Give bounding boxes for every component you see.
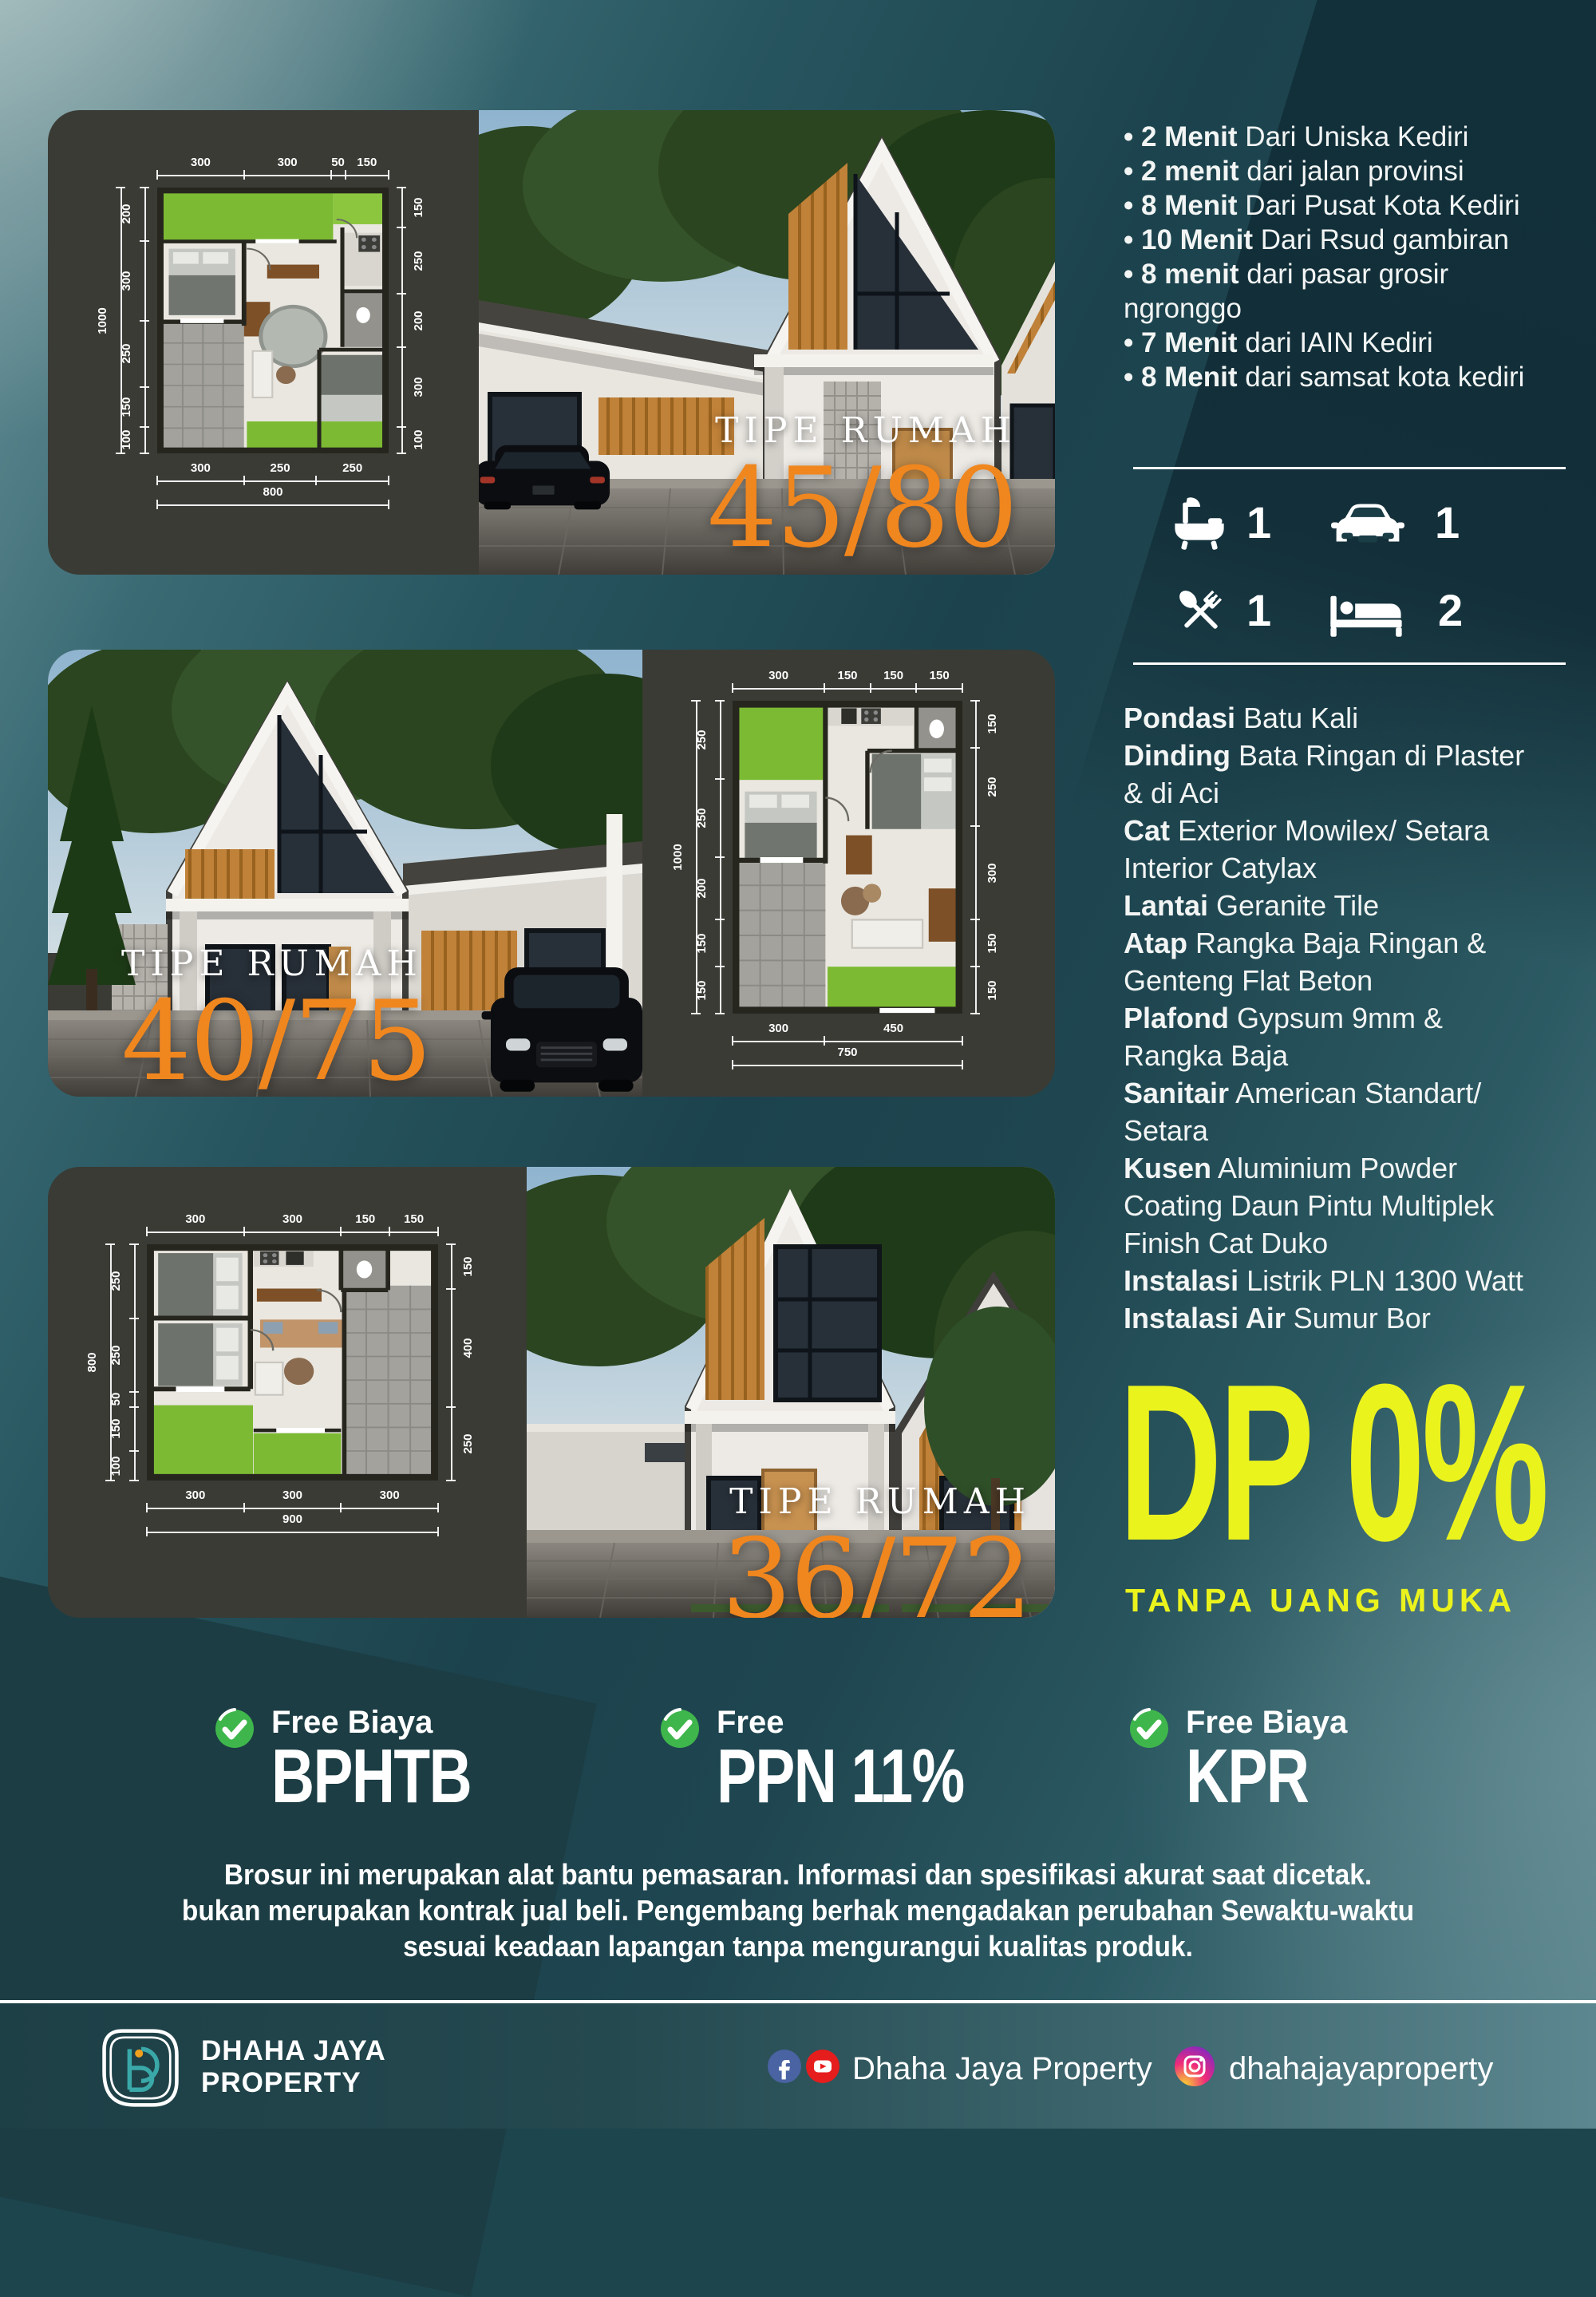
dimension-label: 300 [365,1489,413,1503]
dimension-line [129,1480,139,1481]
car-illustration [482,967,642,1092]
facebook-icon[interactable] [768,2050,801,2087]
disclaimer-line: sesuai keadaan lapangan tanpa mengurangu… [56,1928,1540,1964]
card-type-overlay: TIPE RUMAH 36/72 [721,1485,1031,1618]
dimension-label: 300 [176,461,224,476]
facebook-youtube-handle[interactable]: Dhaha Jaya Property [852,2051,1152,2087]
dimension-label: 200 [412,297,426,345]
brand-line2: PROPERTY [201,2067,386,2099]
floor-plan-40-75: 3001501501503004507502502502001501501000… [677,682,1036,1077]
bedroom-count: 2 [1438,584,1463,636]
divider-line [1133,662,1566,665]
card-type-overlay: TIPE RUMAH 40/75 [121,947,431,1097]
dimension-label: 800 [85,1338,100,1386]
brand-logo-icon [101,2027,180,2113]
dimension-label: 150 [986,967,1000,1014]
disclaimer: Brosur ini merupakan alat bantu pemasara… [0,1856,1596,1964]
floor-plan-36-72: 3003001501503003003009002502505015010080… [67,1199,482,1542]
utensils-icon [1171,581,1229,646]
dimension-line [120,188,122,453]
dimension-line [243,476,245,485]
dimension-line [140,386,149,388]
dimension-line [315,476,317,485]
dimension-line [962,1036,963,1046]
spec-item: Plafond Gypsum 9mm & Rangka Baja [1124,999,1527,1074]
dimension-label: 150 [412,184,426,231]
dimension-label: 300 [412,363,426,411]
floor-plan-drawing [733,701,962,1014]
dimension-line [140,453,149,454]
dimension-label: 1000 [671,833,685,881]
location-list: 2 Menit Dari Uniska Kediri2 menit dari j… [1124,120,1527,394]
dimension-line [389,1227,390,1236]
dimension-line [715,856,725,858]
spec-item: Instalasi Air Sumur Bor [1124,1299,1527,1337]
check-icon [659,1708,701,1753]
instagram-handle[interactable]: dhahajayaproperty [1229,2051,1493,2087]
dimension-line [157,504,389,506]
dimension-line [129,1391,139,1393]
dimension-line [733,1041,962,1042]
dimension-label: 400 [461,1324,476,1372]
benefit-value: BPHTB [271,1742,471,1812]
location-item: 8 menit dari pasar grosir ngronggo [1124,257,1527,326]
house-render-36-72: TIPE RUMAH 36/72 [527,1167,1055,1618]
dimension-label: 800 [249,485,297,500]
dimension-line [129,1318,139,1319]
dimension-line [397,453,406,454]
dimension-line [733,688,962,690]
location-item: 8 Menit Dari Pusat Kota Kediri [1124,188,1527,223]
spec-item: Dinding Bata Ringan di Plaster & di Aci [1124,737,1527,812]
dimension-label: 150 [986,919,1000,967]
house-card-45-80: TIPE RUMAH 45/80 [48,110,1055,575]
dimension-line [129,1450,139,1452]
dimension-line [129,1406,139,1408]
dimension-label: 300 [755,1022,803,1036]
dimension-line [715,778,725,780]
location-item: 2 menit dari jalan provinsi [1124,154,1527,188]
dimension-line [140,426,149,428]
dimension-line [696,701,697,1014]
dimension-line [330,170,332,180]
footer-divider [0,2000,1596,2003]
dimension-line [146,1527,148,1536]
spec-item: Kusen Aluminium Powder Coating Daun Pint… [1124,1149,1527,1262]
house-size-value: 45/80 [707,453,1017,563]
spec-item: Sanitair American Standart/ Setara [1124,1074,1527,1149]
dimension-label: 450 [870,1022,918,1036]
check-icon [1128,1708,1170,1753]
dimension-label: 900 [269,1512,317,1527]
dimension-line [437,1227,439,1236]
dimension-label: 300 [269,1212,317,1227]
dimension-label: 250 [329,461,377,476]
dimension-label: 250 [412,237,426,285]
dimension-label: 150 [824,669,871,683]
dimension-line [157,175,389,176]
bathroom-count: 1 [1246,496,1271,548]
dimension-line [824,1036,825,1046]
dimension-label: 150 [870,669,918,683]
spec-item: Atap Rangka Baja Ringan & Genteng Flat B… [1124,924,1527,999]
dp-subtitle: TANPA UANG MUKA [1125,1582,1516,1619]
benefit-bphtb: Free Biaya BPHTB [214,1703,527,1812]
dimension-line [388,476,389,485]
dimension-line [732,1060,733,1069]
dimension-label: 300 [755,669,803,683]
dimension-label: 150 [915,669,963,683]
dimension-line [397,227,406,228]
floor-plan-45-80: 3003005015030025025080020030025015010010… [112,168,423,527]
disclaimer-line: Brosur ini merupakan alat bantu pemasara… [56,1856,1540,1892]
dimension-label: 150 [342,1212,389,1227]
benefit-value: PPN 11% [717,1742,964,1812]
dimension-line [105,1480,115,1481]
dimension-line [116,453,125,454]
dimension-line [691,1013,701,1014]
location-item: 2 Menit Dari Uniska Kediri [1124,120,1527,154]
dimension-line [715,700,725,702]
dimension-line [340,1503,342,1512]
dimension-line [397,426,406,428]
check-icon [214,1708,255,1753]
dimension-line [962,683,963,693]
dimension-line [345,170,346,180]
carport-count: 1 [1435,496,1460,548]
dimension-label: 750 [824,1046,871,1060]
dimension-line [732,1036,733,1046]
dimension-line [156,500,158,509]
dimension-line [451,1244,452,1481]
brand-name: DHAHA JAYA PROPERTY [201,2035,386,2099]
house-card-36-72: TIPE RUMAH 36/72 [48,1167,1055,1618]
dimension-line [437,1503,439,1512]
dimension-line [970,825,980,827]
dimension-line [147,1508,438,1509]
dimension-line [397,346,406,348]
dimension-label: 1000 [96,297,110,345]
dimension-line [147,1532,438,1533]
dimension-label: 150 [461,1243,476,1291]
dimension-line [437,1527,439,1536]
dimension-line [146,1227,148,1236]
dimension-line [147,1232,438,1233]
dp-zero-text: DP 0% [1119,1370,1546,1557]
dimension-line [105,1243,115,1245]
bed-icon [1328,586,1404,644]
dimension-line [243,170,245,180]
dimension-line [970,700,980,702]
benefit-ppn: Free PPN 11% [659,1703,1033,1812]
dimension-label: 100 [412,416,426,464]
house-size-value: 40/75 [121,986,431,1097]
dimension-label: 250 [256,461,304,476]
dimension-label: 300 [986,849,1000,897]
dimension-line [962,1060,963,1069]
youtube-icon[interactable] [806,2050,839,2087]
dimension-line [446,1243,456,1245]
dimension-line [156,170,158,180]
house-card-40-75: TIPE RUMAH 40/75 [48,650,1055,1097]
dimension-line [915,683,917,693]
house-render-40-75: TIPE RUMAH 40/75 [48,650,642,1097]
dimension-line [243,1227,245,1236]
location-item: 7 Menit dari IAIN Kediri [1124,326,1527,360]
dimension-line [970,966,980,967]
dimension-line [140,187,149,188]
dimension-line [116,187,125,188]
spec-item: Lantai Geranite Tile [1124,887,1527,924]
dimension-label: 250 [461,1420,476,1468]
instagram-icon[interactable] [1175,2046,1215,2090]
dimension-line [715,966,725,967]
dimension-line [397,293,406,295]
disclaimer-line: bukan merupakan kontrak jual beli. Penge… [56,1892,1540,1928]
dimension-line [870,683,871,693]
dimension-line [156,476,158,485]
dimension-line [715,1013,725,1014]
dimension-line [970,747,980,749]
dimension-line [732,683,733,693]
dimension-line [129,1243,139,1245]
house-render-45-80: TIPE RUMAH 45/80 [479,110,1055,575]
dimension-line [134,1244,136,1481]
card-type-overlay: TIPE RUMAH 45/80 [707,413,1017,563]
car-icon [1331,500,1404,559]
dimension-label: 300 [172,1489,219,1503]
dimension-line [824,683,825,693]
dimension-label: 150 [390,1212,438,1227]
dimension-line [446,1406,456,1408]
dimension-line [691,700,701,702]
dimension-line [110,1244,112,1481]
dimension-label: 250 [986,763,1000,811]
dimension-label: 300 [176,156,224,170]
dimension-line [446,1480,456,1481]
dimension-line [146,1503,148,1512]
dimension-label: 300 [172,1212,219,1227]
spec-item: Cat Exterior Mowilex/ Setara Interior Ca… [1124,812,1527,887]
specs-list: Pondasi Batu KaliDinding Bata Ringan di … [1124,699,1527,1337]
brand-line1: DHAHA JAYA [201,2035,386,2067]
dimension-label: 300 [263,156,311,170]
spec-item: Instalasi Listrik PLN 1300 Watt [1124,1262,1527,1299]
floor-plan-drawing [157,188,389,453]
dimension-label: 150 [986,700,1000,748]
benefit-value: KPR [1186,1742,1308,1812]
dimension-line [388,500,389,509]
spec-item: Pondasi Batu Kali [1124,699,1527,737]
house-size-value: 36/72 [721,1524,1031,1618]
dimension-line [388,170,389,180]
location-item: 10 Menit Dari Rsud gambiran [1124,223,1527,257]
dimension-line [970,919,980,920]
dimension-line [397,187,406,188]
kitchen-count: 1 [1246,584,1271,636]
divider-line [1133,467,1566,469]
dimension-line [446,1288,456,1290]
dimension-line [970,1013,980,1014]
dimension-line [340,1227,342,1236]
dimension-line [733,1065,962,1066]
location-item: 8 Menit dari samsat kota kediri [1124,360,1527,394]
dimension-line [715,919,725,920]
bathtub-icon [1171,495,1227,559]
floor-plan-drawing [147,1244,438,1481]
dimension-line [243,1503,245,1512]
dimension-line [157,480,389,482]
dimension-label: 300 [269,1489,317,1503]
dimension-label: 150 [343,156,391,170]
benefit-kpr: Free Biaya KPR [1128,1703,1347,1812]
dimension-line [140,240,149,242]
dimension-line [140,320,149,322]
